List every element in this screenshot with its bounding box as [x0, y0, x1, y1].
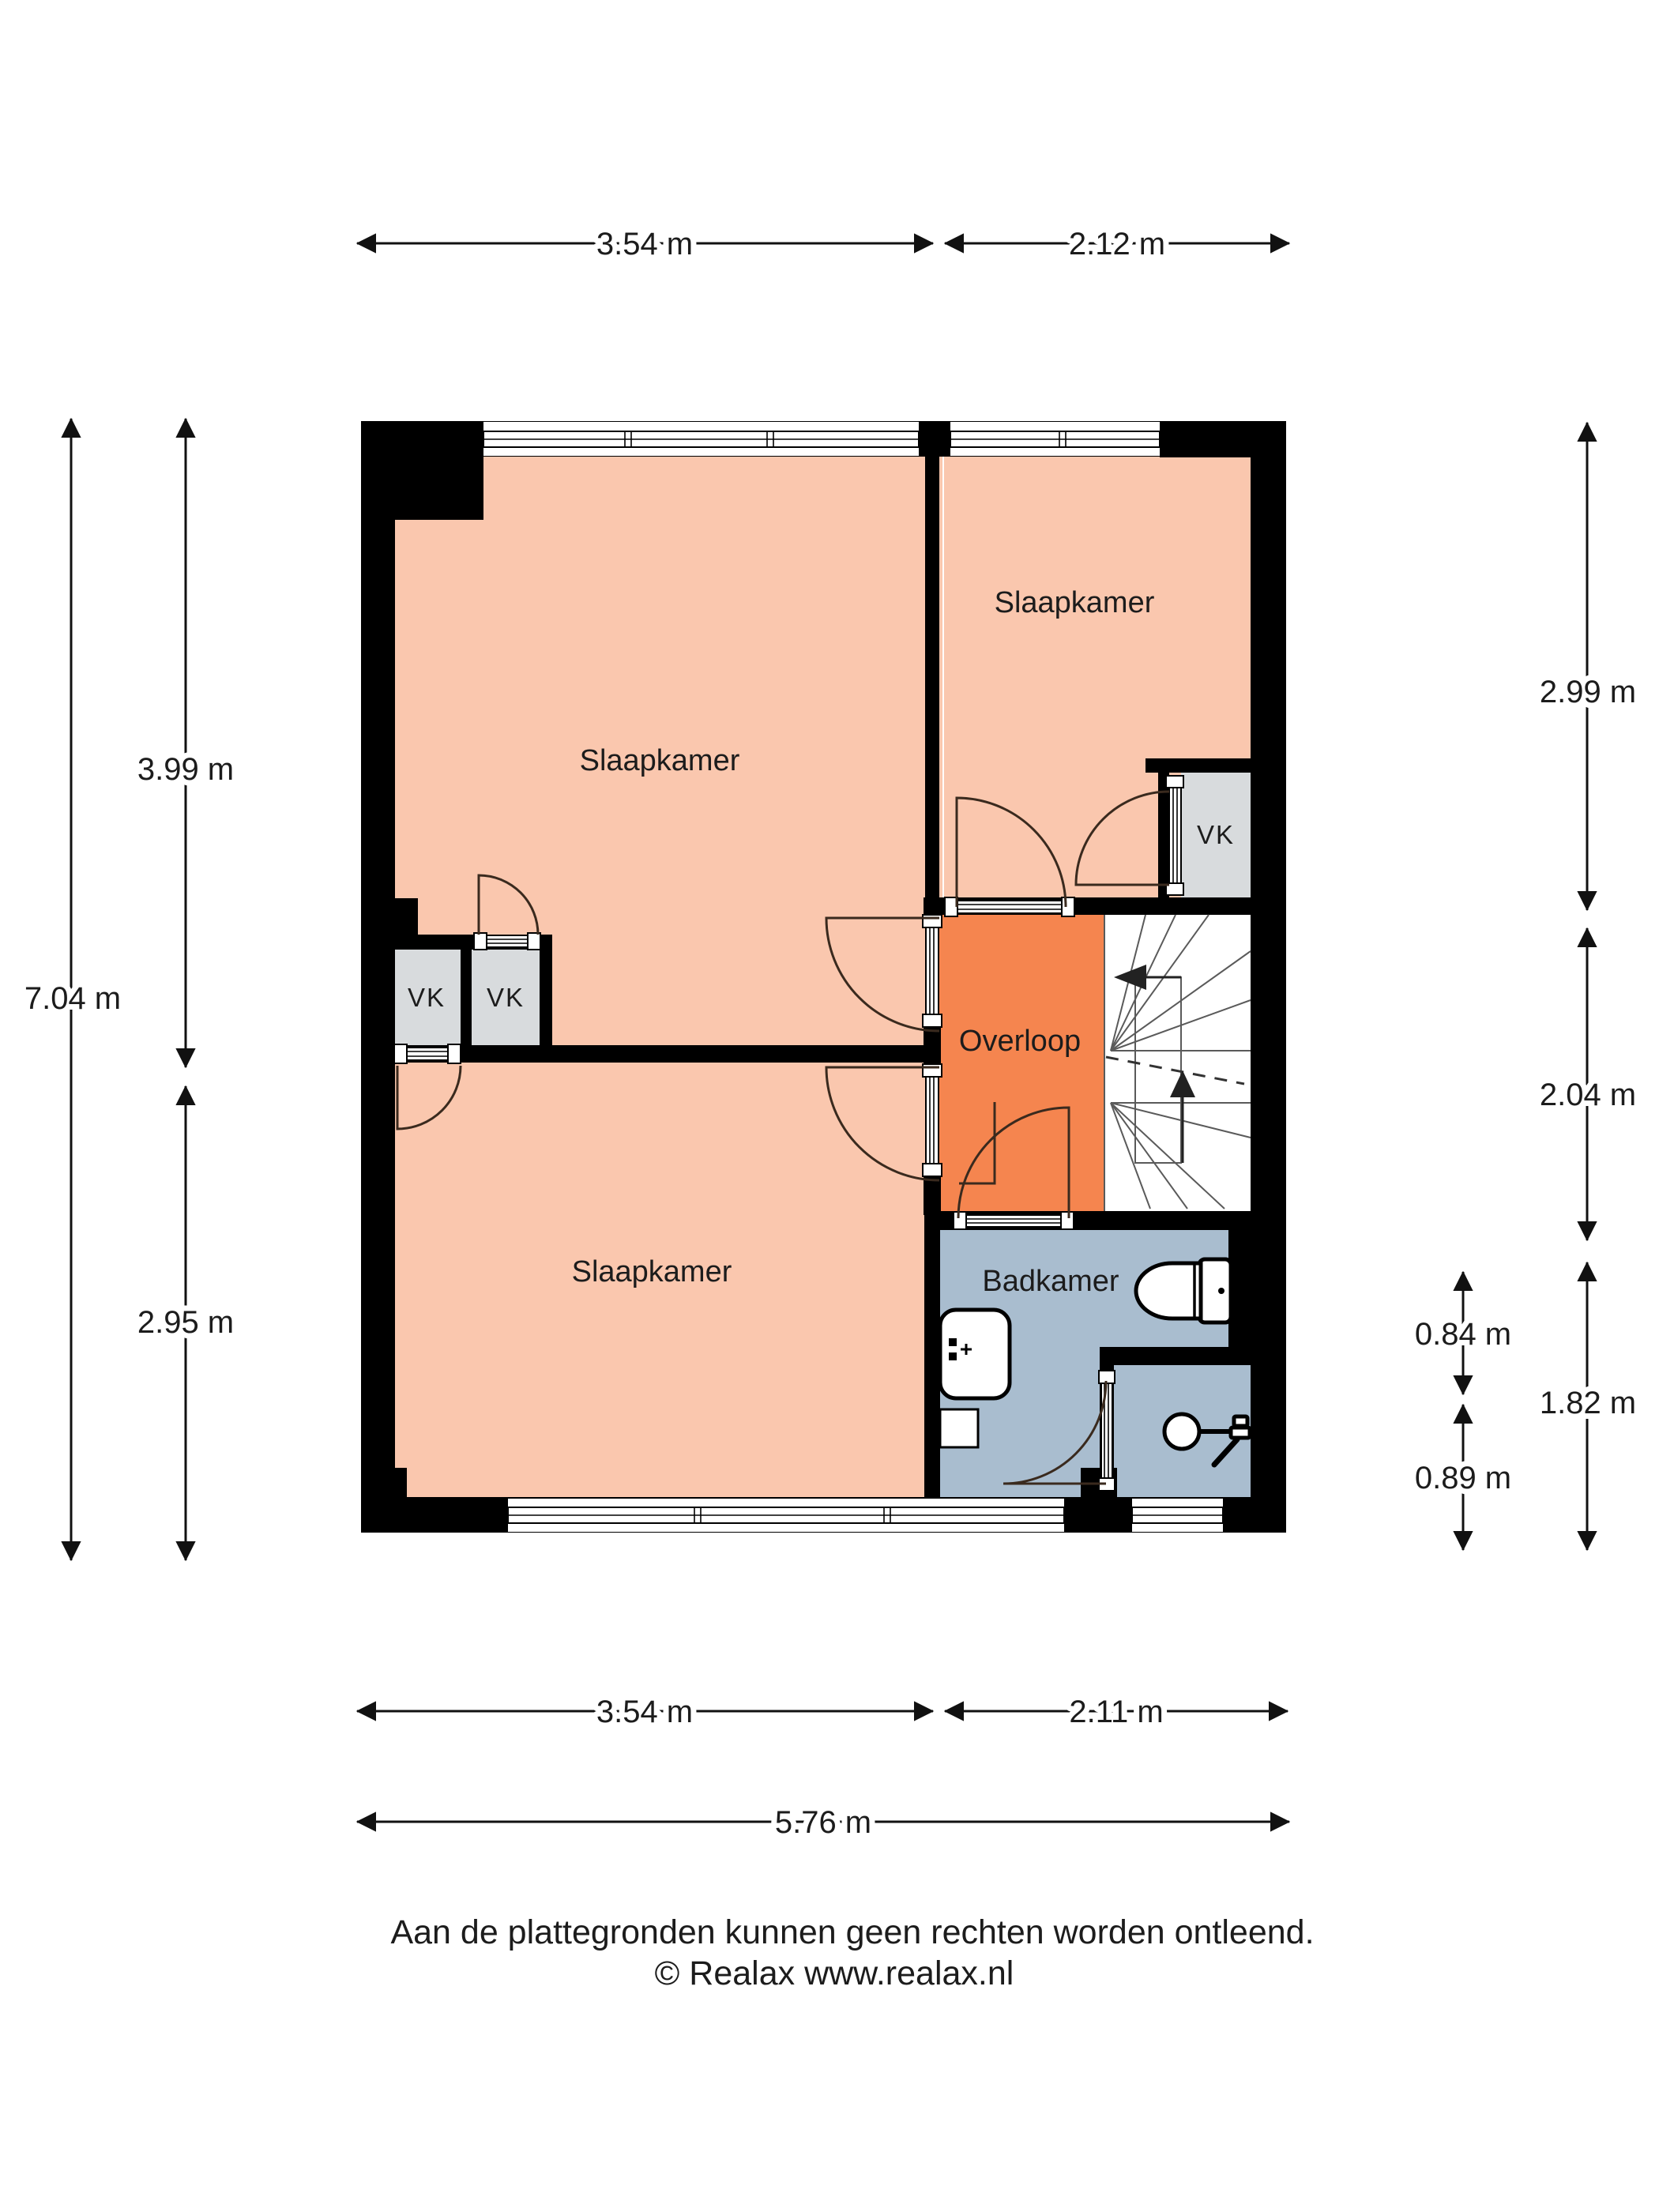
doorframe-landing-to-bedroom-bl — [923, 1064, 942, 1176]
wall-mid-seg2 — [924, 1177, 941, 1215]
dim-bottom-right-label: 2.11 m — [1069, 1695, 1163, 1729]
copyright-text: © Realax www.realax.nl — [655, 1954, 1014, 1992]
dim-bottom-total-label: 5.76 m — [775, 1805, 871, 1840]
wall-corner-bottom-left — [361, 1468, 407, 1533]
doorframe-landing-to-bedroom-tl — [923, 915, 942, 1027]
dim-right-shower-label: 0.89 m — [1415, 1461, 1511, 1495]
landing-floor — [938, 912, 1106, 1222]
doorframe-bathroom — [954, 1212, 1074, 1229]
dim-right-bath-label: 0.84 m — [1415, 1317, 1511, 1352]
disclaimer-text: Aan de plattegronden kunnen geen rechten… — [390, 1913, 1314, 1951]
doorframe-closet-tr — [1166, 776, 1183, 895]
window-bottom-1 — [508, 1499, 1064, 1532]
washbasin — [940, 1310, 1010, 1398]
bedroom-top-right-label: Slaapkamer — [995, 586, 1155, 619]
dim-left-total-label: 7.04 m — [24, 981, 121, 1016]
wall-bathroom-west — [924, 1211, 940, 1497]
shelf — [940, 1409, 978, 1447]
closet-left-2-label: VK — [487, 983, 525, 1012]
wall-corner-top-left — [361, 421, 483, 520]
wall-divider-left — [386, 1045, 939, 1063]
closet-top-right-label: VK — [1197, 820, 1235, 849]
doorframe-bedroom-tr — [945, 897, 1074, 916]
closet-left-1-label: VK — [408, 983, 446, 1012]
bedroom-bottom-left-label: Slaapkamer — [572, 1255, 732, 1288]
landing-label: Overloop — [959, 1025, 1081, 1058]
wall-closets-mid — [461, 948, 472, 1047]
dim-right-upper-label: 2.99 m — [1540, 675, 1636, 709]
floorplan-page: Slaapkamer Slaapkamer Slaapkamer Overloo… — [0, 0, 1659, 2212]
wall-left — [361, 421, 395, 1533]
wall-closet-tr-top — [1145, 758, 1251, 773]
toilet — [1136, 1259, 1231, 1322]
wall-mid-seg1 — [924, 1027, 941, 1066]
window-bottom-2 — [1132, 1499, 1223, 1532]
doorframe-closet-left-2 — [474, 933, 540, 950]
footer: Aan de plattegronden kunnen geen rechten… — [390, 1913, 1314, 1992]
wall-pier-top — [919, 421, 942, 457]
window-top-1 — [483, 422, 919, 456]
dim-top-left-label: 3.54 m — [596, 227, 693, 261]
wall-corner-top-right — [1160, 421, 1286, 457]
dim-right-mid-label: 2.04 m — [1540, 1078, 1636, 1112]
wall-bathroom-right-block — [1228, 1228, 1286, 1352]
doorframe-closet-left-1 — [394, 1044, 461, 1063]
floorplan-drawing: Slaapkamer Slaapkamer Slaapkamer Overloo… — [0, 0, 1659, 2212]
dim-bottom-left-label: 3.54 m — [596, 1695, 693, 1729]
window-top-2 — [950, 422, 1160, 456]
dim-right-lower-label: 1.82 m — [1540, 1386, 1636, 1420]
wall-shower-partition — [1100, 1347, 1251, 1365]
dim-top-right-label: 2.12 m — [1069, 227, 1165, 261]
dim-left-lower-label: 2.95 m — [137, 1305, 234, 1340]
wall-closets-right — [540, 935, 552, 1063]
wall-right — [1251, 421, 1286, 1533]
wall-mid-upper — [925, 457, 939, 899]
bedroom-top-left-label: Slaapkamer — [580, 744, 740, 777]
bathroom-label: Badkamer — [982, 1265, 1119, 1298]
dim-left-upper-label: 3.99 m — [137, 752, 234, 787]
